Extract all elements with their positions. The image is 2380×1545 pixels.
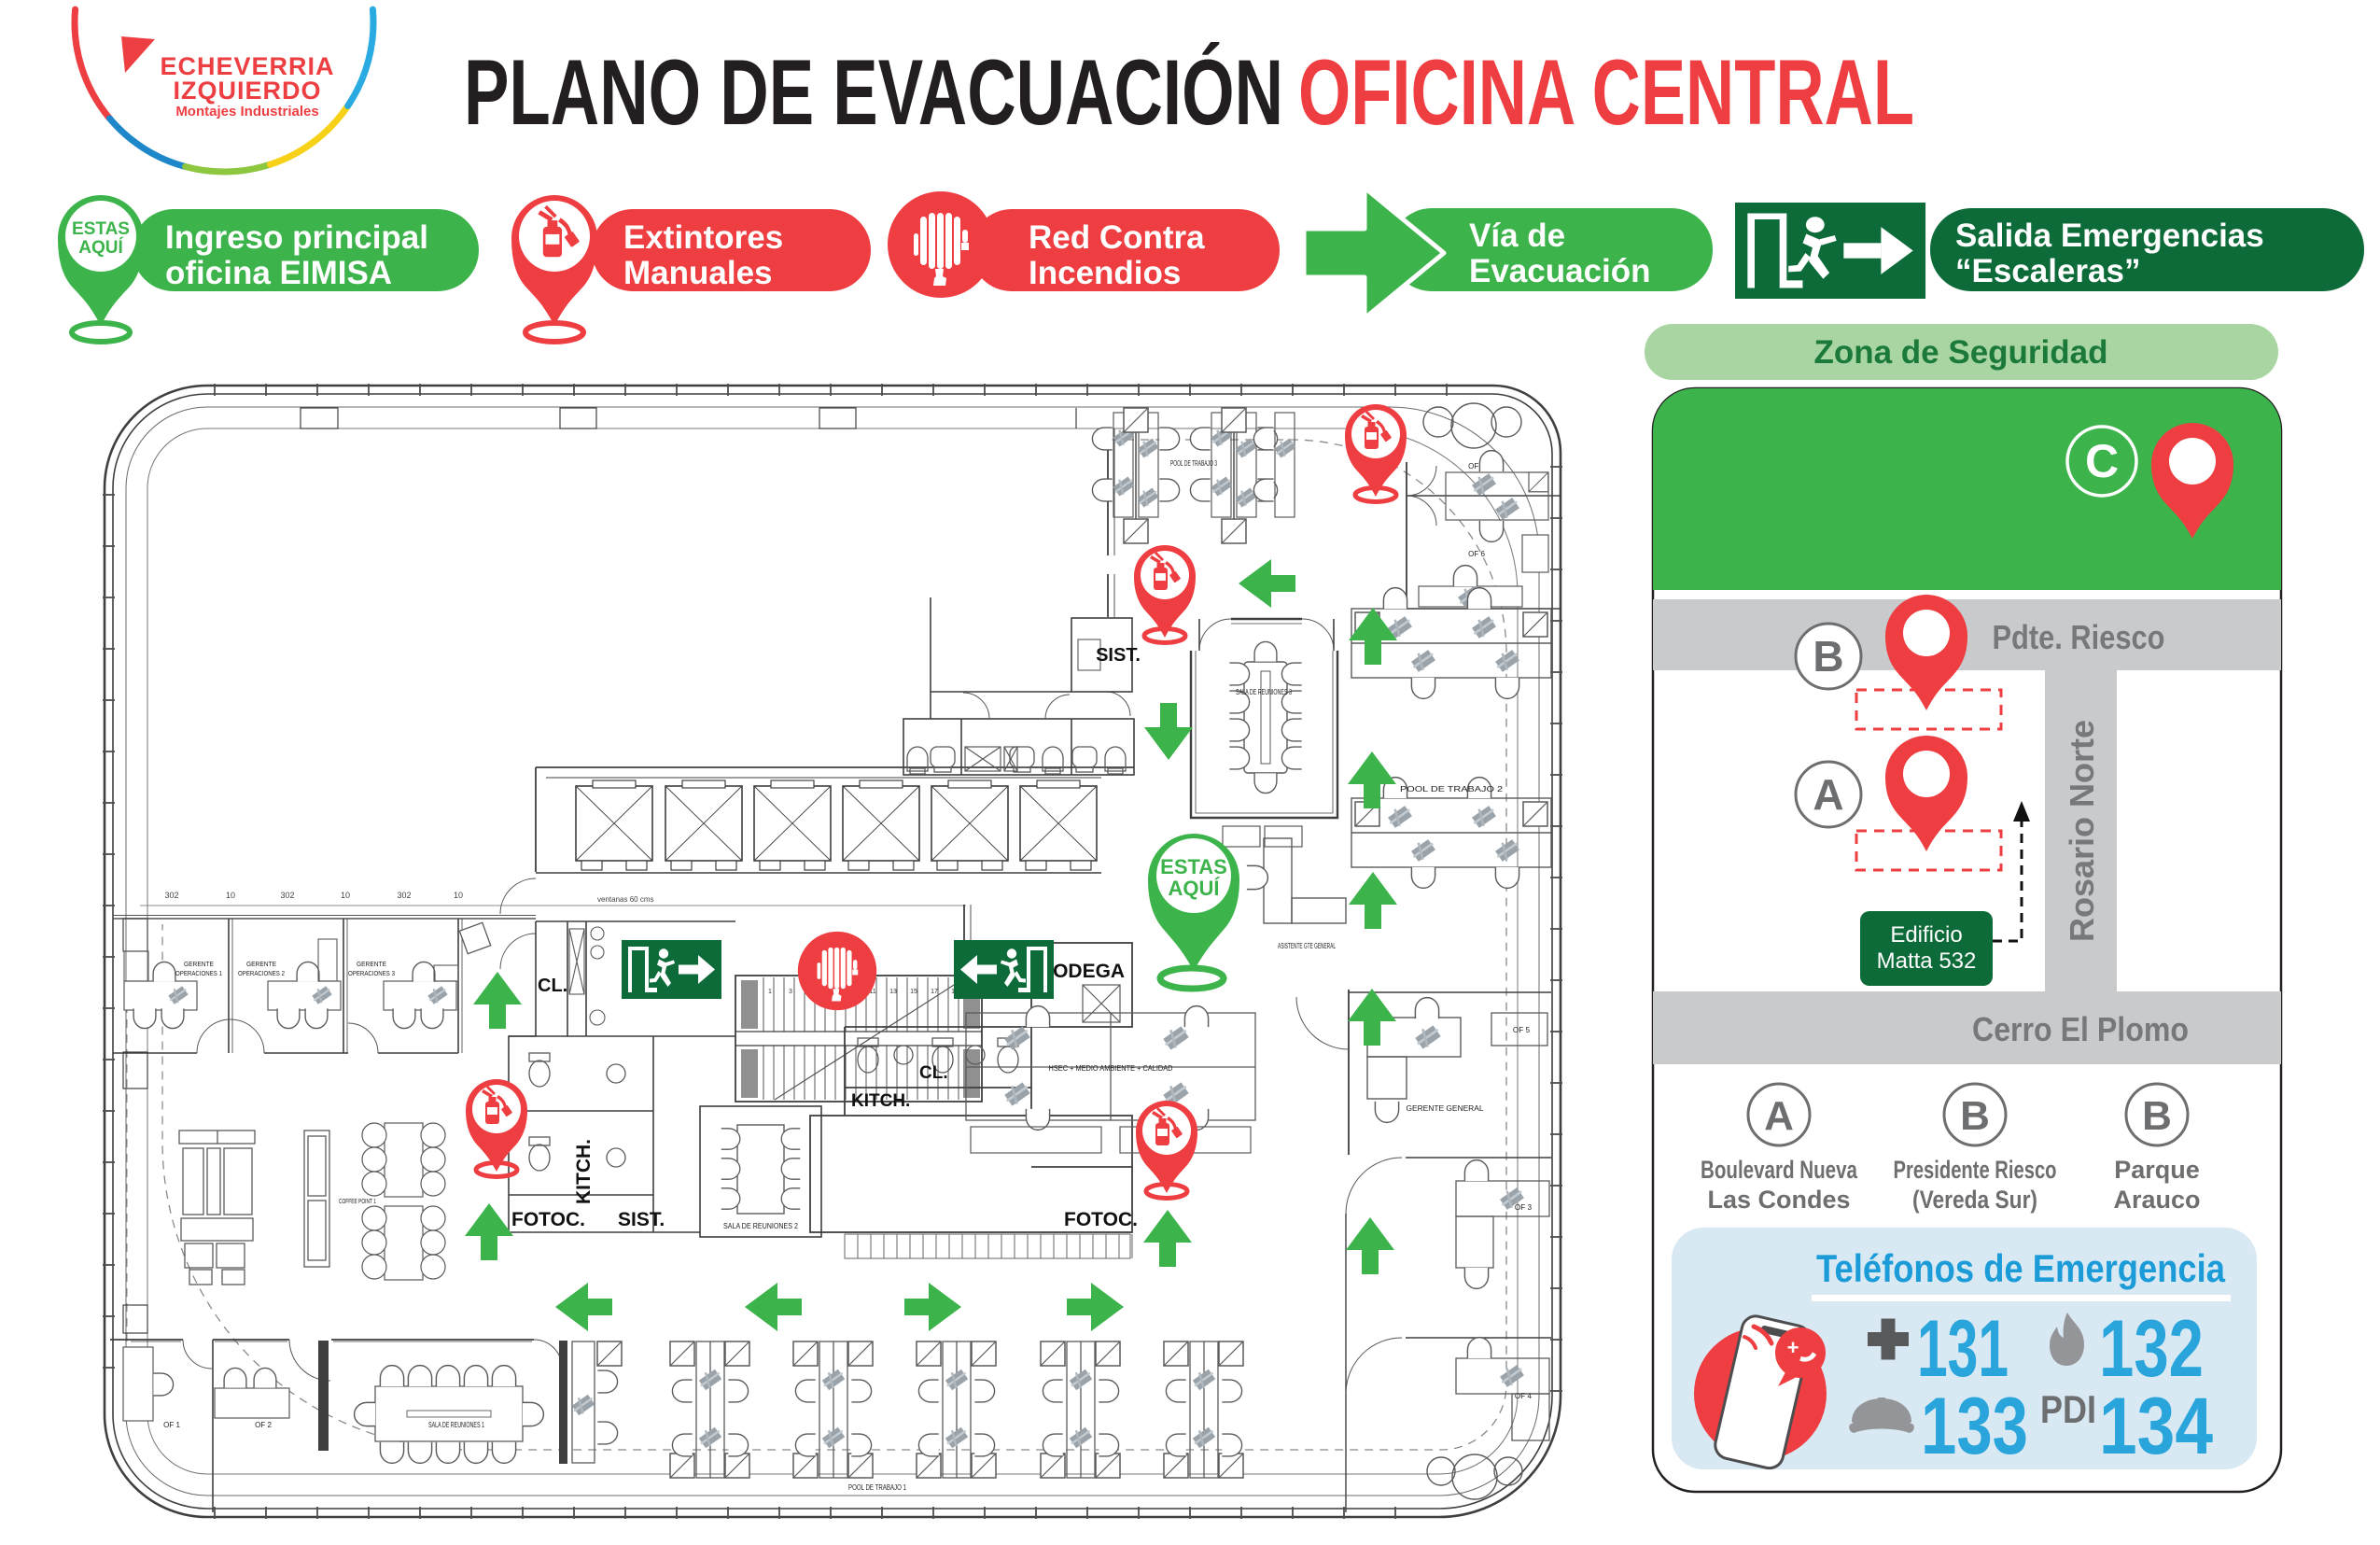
svg-text:132: 132 [2099,1304,2204,1394]
svg-text:GERENTE: GERENTE [184,960,214,968]
svg-text:Vía de: Vía de [1469,218,1565,254]
svg-text:OFICINA CENTRAL: OFICINA CENTRAL [1298,40,1914,144]
svg-text:Edificio: Edificio [1890,922,1962,948]
svg-text:GERENTE GENERAL: GERENTE GENERAL [1407,1104,1485,1113]
svg-text:oficina EIMISA: oficina EIMISA [165,255,392,291]
svg-text:KITCH.: KITCH. [573,1139,595,1204]
svg-text:OF 4: OF 4 [1515,1392,1533,1400]
svg-text:A: A [1764,1093,1794,1139]
svg-text:A: A [1813,770,1843,819]
svg-text:Boulevard Nueva: Boulevard Nueva [1701,1156,1858,1184]
svg-text:SALA DE REUNIONES 3: SALA DE REUNIONES 3 [1236,688,1292,696]
svg-text:Teléfonos de Emergencia: Teléfonos de Emergencia [1816,1246,2226,1290]
svg-text:Las Condes: Las Condes [1707,1186,1850,1214]
svg-text:ESTAS: ESTAS [1160,855,1227,878]
svg-text:10: 10 [341,891,350,900]
svg-text:“Escaleras”: “Escaleras” [1955,253,2140,289]
svg-text:134: 134 [2099,1382,2213,1471]
svg-text:AQUÍ: AQUÍ [78,237,123,258]
svg-text:OF 2: OF 2 [255,1421,272,1429]
svg-text:Zona de Seguridad: Zona de Seguridad [1813,334,2107,371]
svg-text:OF 6: OF 6 [1468,550,1485,558]
svg-text:OPERACIONES 1: OPERACIONES 1 [175,969,222,977]
svg-text:Montajes Industriales: Montajes Industriales [175,104,318,119]
svg-text:OPERACIONES 3: OPERACIONES 3 [348,969,395,977]
svg-text:17: 17 [931,989,938,995]
svg-text:Manuales: Manuales [623,255,773,291]
svg-text:POOL DE TRABAJO 1: POOL DE TRABAJO 1 [848,1483,906,1492]
svg-text:SIST.: SIST. [1096,645,1141,666]
svg-text:OF 1: OF 1 [163,1421,180,1429]
svg-text:ESTAS: ESTAS [72,219,130,239]
svg-text:FOTOC.: FOTOC. [511,1209,585,1230]
svg-text:GERENTE: GERENTE [246,960,276,968]
svg-text:131: 131 [1917,1304,2009,1394]
svg-text:CL.: CL. [919,1063,948,1083]
svg-text:ASISTENTE GTE GENERAL: ASISTENTE GTE GENERAL [1278,942,1336,950]
svg-text:1: 1 [768,989,772,995]
svg-text:10: 10 [226,891,235,900]
svg-text:ventanas 60 cms: ventanas 60 cms [597,895,653,904]
svg-text:FOTOC.: FOTOC. [1064,1209,1138,1230]
svg-text:CL.: CL. [538,976,567,996]
svg-text:Ingreso principal: Ingreso principal [165,219,428,256]
svg-text:Salida Emergencias: Salida Emergencias [1955,218,2264,254]
svg-text:OF 3: OF 3 [1515,1203,1533,1212]
svg-text:15: 15 [910,989,917,995]
svg-text:10: 10 [454,891,463,900]
svg-text:Red Contra: Red Contra [1029,219,1205,256]
svg-text:POOL DE TRABAJO 3: POOL DE TRABAJO 3 [1170,459,1217,468]
svg-text:Evacuación: Evacuación [1469,253,1651,289]
svg-text:Parque: Parque [2114,1156,2200,1184]
svg-text:Extintores: Extintores [623,219,783,256]
svg-text:IZQUIERDO: IZQUIERDO [173,77,321,105]
svg-text:133: 133 [1921,1382,2028,1471]
svg-text:+: + [1787,1336,1799,1359]
svg-text:Cerro El Plomo: Cerro El Plomo [1972,1010,2189,1048]
svg-text:302: 302 [164,891,178,900]
svg-text:PLANO DE EVACUACIÓN: PLANO DE EVACUACIÓN [464,40,1283,144]
svg-text:OF 5: OF 5 [1513,1026,1531,1034]
svg-text:3: 3 [789,989,792,995]
svg-text:POOL DE TRABAJO 2: POOL DE TRABAJO 2 [1400,785,1504,794]
svg-text:SALA DE REUNIONES 1: SALA DE REUNIONES 1 [428,1421,484,1429]
svg-text:Incendios: Incendios [1029,255,1181,291]
svg-text:B: B [2142,1093,2172,1139]
svg-text:HSEC + MEDIO AMBIENTE + CALIDA: HSEC + MEDIO AMBIENTE + CALIDAD [1049,1064,1173,1073]
svg-text:13: 13 [889,989,897,995]
svg-text:Rosario Norte: Rosario Norte [2063,720,2101,942]
svg-text:Arauco: Arauco [2113,1186,2200,1214]
svg-text:C: C [2085,435,2119,487]
svg-text:Pdte. Riesco: Pdte. Riesco [1993,618,2165,656]
svg-text:(Vereda Sur): (Vereda Sur) [1912,1186,2037,1214]
svg-text:302: 302 [280,891,294,900]
svg-text:Presidente Riesco: Presidente Riesco [1894,1156,2057,1184]
svg-text:SIST.: SIST. [618,1209,665,1230]
svg-text:B: B [1813,632,1843,681]
svg-text:AQUÍ: AQUÍ [1169,877,1221,900]
svg-text:302: 302 [397,891,411,900]
svg-text:SALA DE REUNIONES 2: SALA DE REUNIONES 2 [723,1222,798,1230]
svg-text:COFFEE POINT 1: COFFEE POINT 1 [339,1199,376,1205]
svg-text:Matta 532: Matta 532 [1877,948,1977,974]
svg-text:PDI: PDI [2040,1387,2096,1431]
svg-text:GERENTE: GERENTE [357,960,386,968]
svg-text:OPERACIONES 2: OPERACIONES 2 [238,969,285,977]
svg-text:B: B [1960,1093,1990,1139]
svg-text:KITCH.: KITCH. [851,1091,910,1111]
